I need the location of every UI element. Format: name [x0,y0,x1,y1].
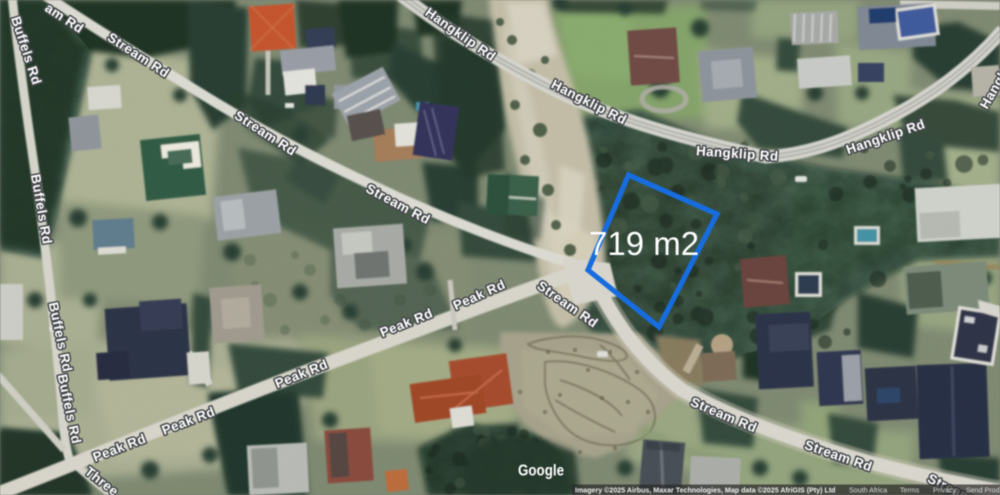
svg-text:Terms: Terms [900,487,920,495]
svg-text:Imagery ©2025 Airbus, Maxar Te: Imagery ©2025 Airbus, Maxar Technologies… [575,487,836,495]
svg-text:Privacy: Privacy [933,487,957,495]
svg-text:Send Prod: Send Prod [966,487,1000,495]
svg-text:719 m2: 719 m2 [589,225,699,262]
svg-text:South Africa: South Africa [849,487,887,495]
svg-text:Google: Google [518,463,564,480]
